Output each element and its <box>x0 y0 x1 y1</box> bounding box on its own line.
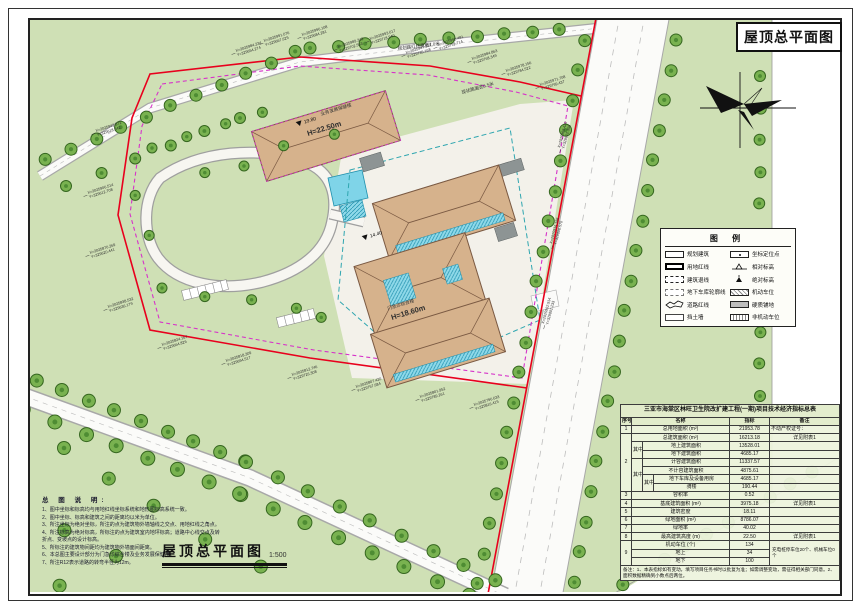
table-row: 7 绿地率 40.02 <box>621 524 840 532</box>
table-row: 5 建筑密度 18.11 <box>621 508 840 516</box>
indicator-table-wrap: 三亚市海棠区林旺卫生院改扩建工程(一期)项目技术经济指标总表 序号 名称 指标 … <box>620 404 839 581</box>
note-item: 1、图中坐标和标高均与用地红线坐标系统和地形图标高系统一致。 <box>42 507 224 515</box>
indicator-table: 三亚市海棠区林旺卫生院改扩建工程(一期)项目技术经济指标总表 序号 名称 指标 … <box>620 404 840 581</box>
legend-item: 建筑退线 <box>665 275 726 284</box>
legend-box: 图 例 规划建筑 坐标定位点 用地红线 相对标高 建筑退线 <box>660 228 796 327</box>
table-row: 其中 地上建筑面积 13528.01 <box>621 442 840 450</box>
site-redline-swatch-icon <box>665 263 684 270</box>
drawing-title-block: 屋顶总平面图 1:500 <box>162 541 287 568</box>
table-row: 不计容建筑面积 4875.61 <box>621 467 840 475</box>
legend-item: 用地红线 <box>665 262 726 271</box>
sheet-title: 屋顶总平面图 <box>744 27 834 47</box>
legend-item: 机动车位 <box>730 288 791 296</box>
coordinate-point-icon <box>730 251 749 258</box>
title-underline-thin <box>162 567 287 568</box>
table-row: 4 基底建筑面积 (m²) 3975.18 详见附表1 <box>621 500 840 508</box>
legend-item: 道路红线 <box>665 300 726 309</box>
parking-swatch-icon <box>730 289 749 296</box>
note-item: 2、图中坐标、标高和建筑之间的距离均以米为单位。 <box>42 515 224 523</box>
table-footnote-row: 备注：1、本表指标如有变动，填写项目任务书时以批复为准；如需调整变动，需征得相关… <box>621 566 840 581</box>
legend-item: 挡土墙 <box>665 313 726 321</box>
bike-parking-swatch-icon <box>730 314 749 321</box>
paving-swatch-icon <box>730 301 749 308</box>
road-redline-icon <box>665 300 684 309</box>
sheet-title-box: 屋顶总平面图 <box>736 22 842 52</box>
table-row: 8 最高建筑高度 (m) 22.50 详见附表1 <box>621 533 840 541</box>
legend-item: 坐标定位点 <box>730 250 791 258</box>
drawing-scale: 1:500 <box>269 552 287 559</box>
retaining-wall-swatch-icon <box>665 314 684 321</box>
absolute-elevation-icon <box>730 275 749 284</box>
legend-item: 非机动车位 <box>730 313 791 321</box>
building-retreat-swatch-icon <box>665 276 684 283</box>
legend-item: 地下车库轮廓线 <box>665 288 726 296</box>
table-row: 2 总建筑面积 (m²) 16213.18 详见附表1 <box>621 434 840 442</box>
table-row: 骑楼 190.44 <box>621 483 840 491</box>
table-row: 其中 计容建筑面积 11337.57 <box>621 458 840 466</box>
planned-building-swatch-icon <box>665 251 684 258</box>
legend-item: 规划建筑 <box>665 250 726 258</box>
note-item: 3、所注坐标为绝对坐标，所注的点为建筑物外墙轴线之交点、用地红线之角点。 <box>42 522 224 530</box>
legend-item: 相对标高 <box>730 262 791 271</box>
drawing-sheet: 19.80 业务发展保健楼 H=22.50m 14.40 门急诊综合楼 H=18… <box>0 0 860 608</box>
table-title: 三亚市海棠区林旺卫生院改扩建工程(一期)项目技术经济指标总表 <box>621 405 840 418</box>
legend-item: 硬质铺地 <box>730 300 791 309</box>
legend-title: 图 例 <box>665 233 791 247</box>
table-row: 6 绿地面积 (m²) 8786.07 <box>621 516 840 524</box>
notes-title: 总 图 说 明: <box>42 494 224 504</box>
table-row: 其中 地下车库及设备用房 4685.17 <box>621 475 840 483</box>
table-row: 3 容积率 0.52 <box>621 491 840 499</box>
table-row: 1 总用地面积 (m²) 21953.78 不动产权证号： <box>621 425 840 433</box>
table-row: 9 机动车位 (个) 134 充电桩停车位20个、机械车位0个 <box>621 541 840 549</box>
drawing-title: 屋顶总平面图 <box>162 541 264 561</box>
relative-elevation-icon <box>730 262 749 271</box>
garage-outline-swatch-icon <box>665 289 684 296</box>
title-underline-thick <box>162 563 287 566</box>
table-row: 地下建筑面积 4685.17 <box>621 450 840 458</box>
legend-item: 绝对标高 <box>730 275 791 284</box>
